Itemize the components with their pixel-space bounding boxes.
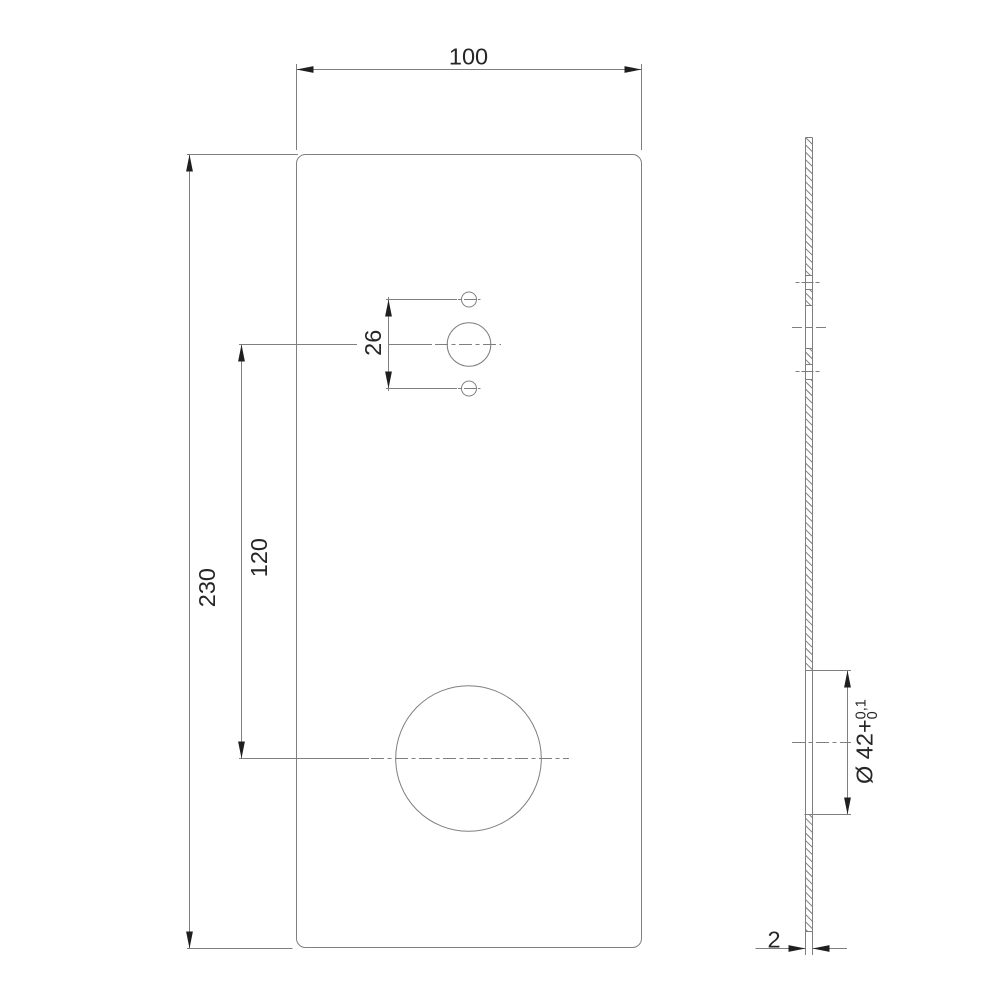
svg-text:230: 230 — [194, 568, 220, 607]
svg-text:26: 26 — [360, 330, 386, 356]
svg-text:120: 120 — [246, 538, 272, 577]
svg-text:Ø 42+0,10: Ø 42+0,10 — [852, 699, 881, 784]
svg-text:2: 2 — [767, 926, 780, 952]
svg-text:100: 100 — [449, 43, 488, 69]
